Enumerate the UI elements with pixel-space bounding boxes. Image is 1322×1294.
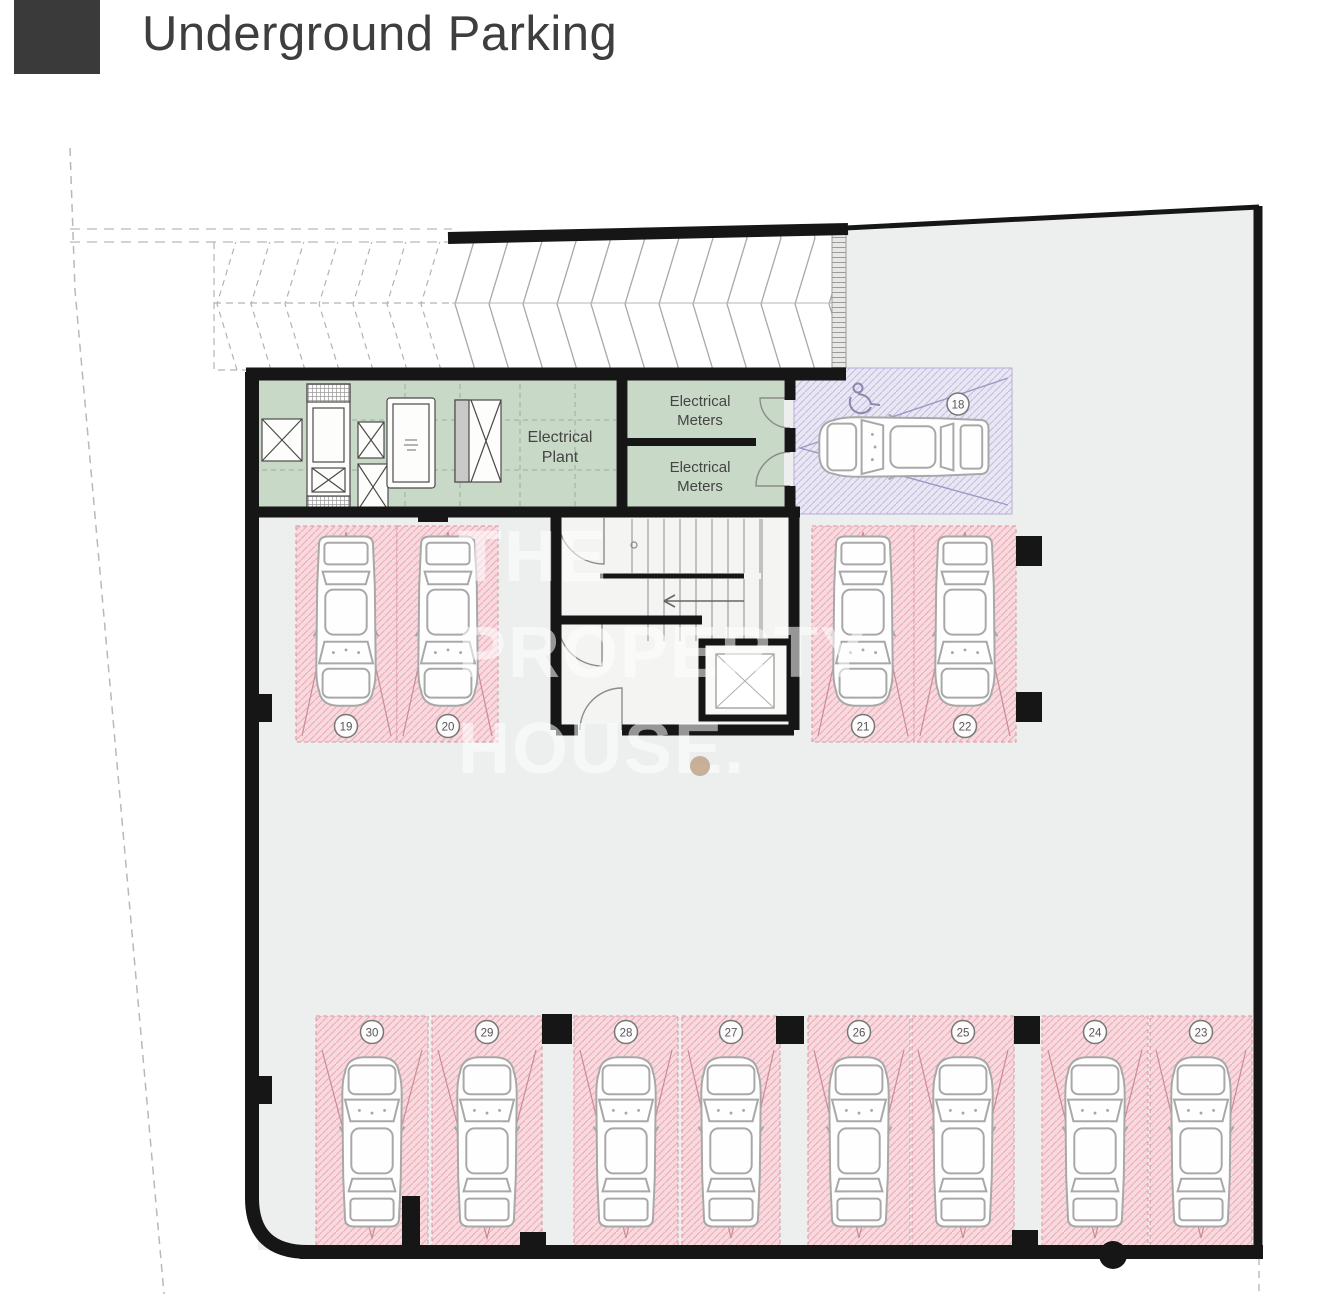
svg-text:24: 24 (1089, 1028, 1102, 1040)
spot-number-badge: 21 (852, 715, 875, 738)
svg-text:25: 25 (957, 1028, 970, 1040)
parking-spot-28: 28 (574, 1016, 678, 1246)
spot-number-badge: 19 (335, 715, 358, 738)
spot-number-badge: 26 (848, 1021, 871, 1044)
spot-number-badge: 22 (954, 715, 977, 738)
svg-text:22: 22 (959, 722, 972, 734)
page-title: Underground Parking (142, 6, 617, 62)
svg-text:19: 19 (340, 722, 353, 734)
ramp-side-wall (832, 231, 846, 369)
spot-number-badge: 29 (476, 1021, 499, 1044)
svg-text:20: 20 (442, 722, 455, 734)
spot-number-badge: 30 (361, 1021, 384, 1044)
car-icon (827, 1057, 892, 1226)
spot-number-badge: 25 (952, 1021, 975, 1044)
ramp-dashed-section (214, 242, 452, 370)
spot-number-badge: 27 (720, 1021, 743, 1044)
car-icon (1169, 1057, 1234, 1226)
svg-text:Electrical: Electrical (670, 459, 731, 476)
parking-spot-26: 26 (808, 1016, 910, 1246)
car-icon (594, 1057, 659, 1226)
svg-text:23: 23 (1195, 1028, 1208, 1040)
parking-spot-22: 22 (914, 526, 1016, 742)
parking-spot-19: 19 (296, 526, 397, 742)
spot-number-badge: 28 (615, 1021, 638, 1044)
svg-text:28: 28 (620, 1028, 633, 1040)
parking-spot-23: 23 (1150, 1016, 1252, 1246)
parking-spot-25: 25 (912, 1016, 1014, 1246)
page: Underground Parking (0, 0, 1322, 1294)
svg-text:27: 27 (725, 1028, 738, 1040)
parking-spot-27: 27 (682, 1016, 780, 1246)
svg-text:30: 30 (366, 1028, 379, 1040)
car-icon (455, 1057, 520, 1226)
spot-number-badge: 18 (947, 393, 969, 415)
car-icon (819, 415, 988, 480)
svg-text:PROPERTY: PROPERTY (458, 613, 870, 693)
drain-point (1099, 1241, 1127, 1269)
parking-spot-24: 24 (1042, 1016, 1148, 1246)
spot-number-badge: 24 (1084, 1021, 1107, 1044)
ramp-solid-section (452, 229, 846, 371)
watermark-dot (690, 756, 710, 776)
svg-text:Electrical: Electrical (528, 429, 593, 446)
svg-text:THE: THE (458, 517, 608, 597)
svg-text:18: 18 (952, 400, 965, 412)
svg-text:26: 26 (853, 1028, 866, 1040)
car-icon (931, 1057, 996, 1226)
car-icon (933, 537, 998, 706)
svg-text:Plant: Plant (542, 449, 579, 466)
parking-spot-18-accessible: 18 (794, 368, 1012, 514)
electrical-plant-room: Electrical Plant (258, 380, 616, 510)
spot-number-badge: 20 (437, 715, 460, 738)
car-icon (314, 537, 379, 706)
car-icon (699, 1057, 764, 1226)
svg-text:Meters: Meters (677, 412, 723, 429)
svg-text:Electrical: Electrical (670, 393, 731, 410)
header: Underground Parking (0, 0, 1322, 90)
spot-number-badge: 23 (1190, 1021, 1213, 1044)
svg-text:HOUSE.: HOUSE. (458, 709, 746, 789)
svg-text:21: 21 (857, 722, 870, 734)
entry-ramp (214, 229, 846, 371)
logo-square (14, 0, 100, 74)
floor-plan: Electrical Plant Electrical Meters Elect… (0, 0, 1322, 1294)
svg-text:29: 29 (481, 1028, 494, 1040)
svg-text:Meters: Meters (677, 478, 723, 495)
parking-spot-29: 29 (432, 1016, 542, 1246)
car-icon (1063, 1057, 1128, 1226)
car-icon (340, 1057, 405, 1226)
